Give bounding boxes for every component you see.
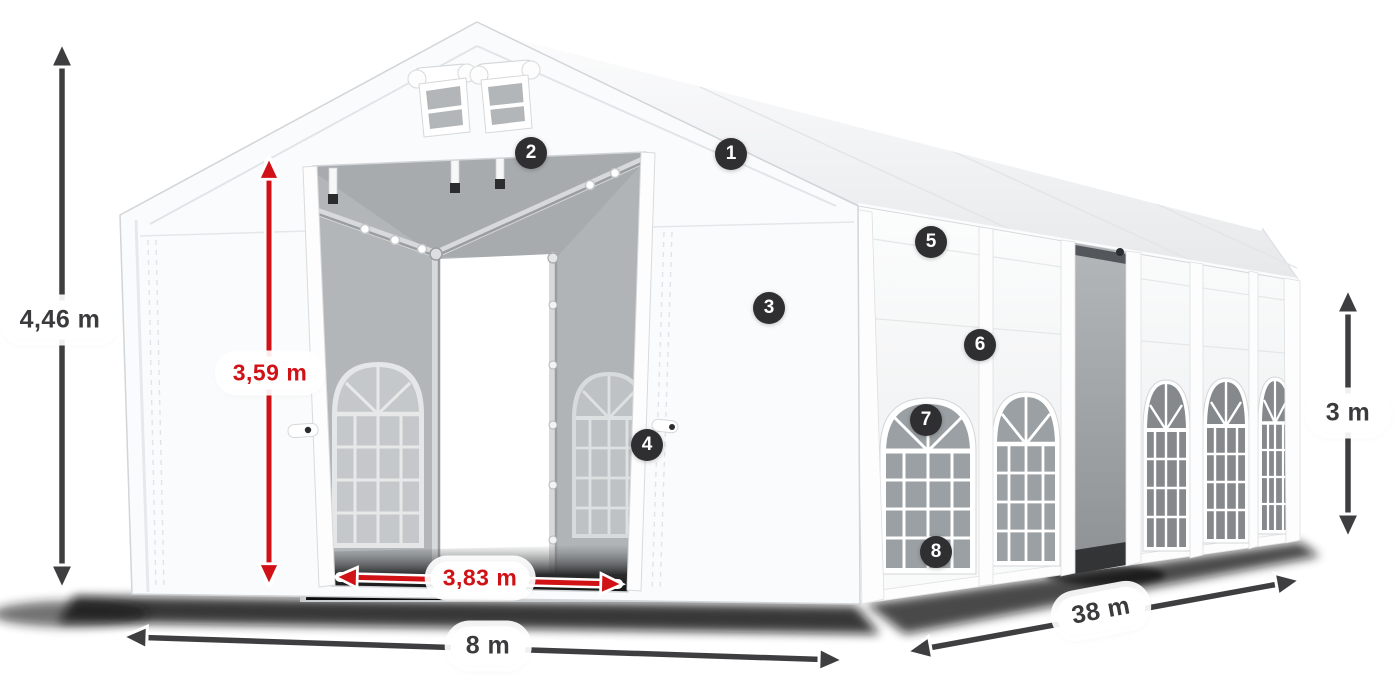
callout-hotspot-6[interactable]: 6 (964, 329, 996, 361)
side-window (1203, 378, 1249, 543)
label-entrance-width: 3,83 m (431, 562, 530, 595)
tent-interior (300, 140, 660, 602)
side-door-opening (1075, 243, 1126, 574)
callout-hotspot-1[interactable]: 1 (715, 138, 747, 170)
label-entrance-height: 3,59 m (221, 357, 320, 390)
tent-illustration (0, 0, 1400, 700)
interior-window (332, 362, 424, 548)
interior-rear-opening (440, 254, 552, 598)
tent-dimension-diagram: 4,46 m 3,59 m 3,83 m 8 m 38 m 3 m 1 2 3 … (0, 0, 1400, 700)
label-width: 8 m (451, 627, 526, 666)
side-window (992, 392, 1060, 566)
label-side-height: 3 m (1311, 394, 1386, 433)
callout-hotspot-7[interactable]: 7 (910, 404, 942, 436)
callout-hotspot-5[interactable]: 5 (915, 226, 947, 258)
callout-hotspot-2[interactable]: 2 (515, 137, 547, 169)
side-window (1143, 380, 1190, 551)
callout-hotspot-8[interactable]: 8 (920, 536, 952, 568)
label-total-height: 4,46 m (5, 301, 116, 340)
callout-hotspot-3[interactable]: 3 (753, 292, 785, 324)
callout-hotspot-4[interactable]: 4 (631, 429, 663, 461)
